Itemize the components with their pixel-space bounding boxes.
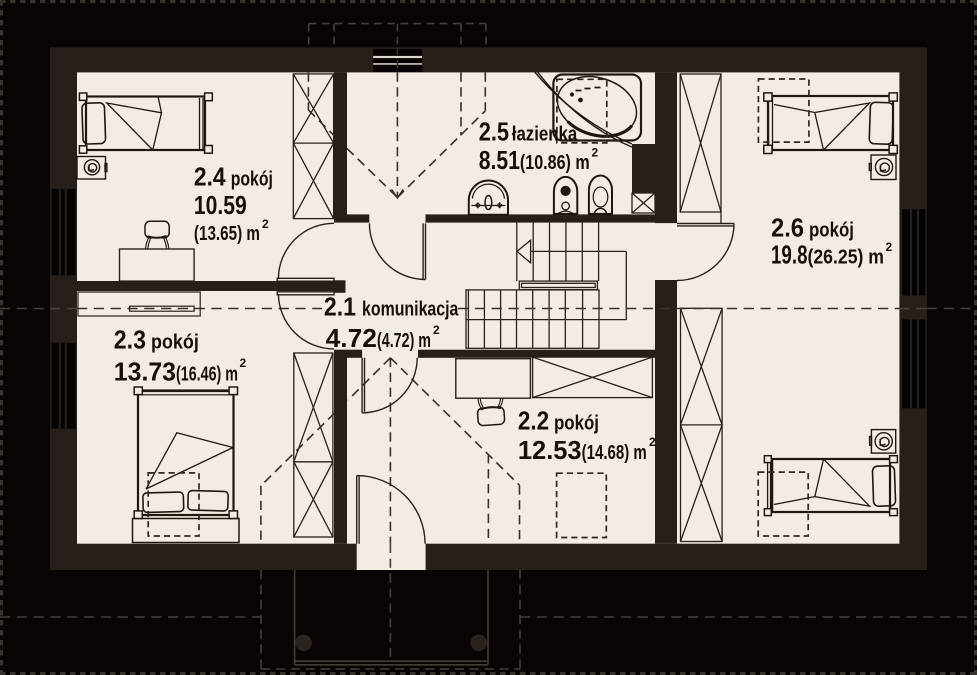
svg-text:(16.46) m: (16.46) m <box>176 362 238 385</box>
svg-text:pokój: pokój <box>231 167 273 190</box>
svg-text:(4.72) m: (4.72) m <box>377 329 431 352</box>
svg-text:2: 2 <box>262 217 269 231</box>
svg-text:2.1: 2.1 <box>324 292 356 322</box>
svg-text:2.4: 2.4 <box>194 161 226 191</box>
svg-text:(10.86) m: (10.86) m <box>520 151 590 174</box>
svg-text:2.3: 2.3 <box>114 325 146 355</box>
svg-text:8.51: 8.51 <box>479 145 520 175</box>
svg-text:2.5: 2.5 <box>479 116 509 146</box>
svg-text:(26.25) m: (26.25) m <box>808 246 885 269</box>
svg-text:łazienka: łazienka <box>512 122 578 145</box>
svg-text:pokój: pokój <box>554 411 599 434</box>
svg-text:2.6: 2.6 <box>771 213 804 243</box>
svg-text:2: 2 <box>240 356 247 370</box>
svg-text:2: 2 <box>433 323 440 337</box>
svg-text:10.59: 10.59 <box>194 190 247 220</box>
svg-text:komunikacja: komunikacja <box>362 298 459 321</box>
svg-text:2: 2 <box>592 146 599 160</box>
svg-text:2: 2 <box>886 240 893 254</box>
svg-text:4.72: 4.72 <box>326 323 377 353</box>
svg-text:pokój: pokój <box>151 331 199 354</box>
svg-text:19.8: 19.8 <box>771 240 808 270</box>
svg-text:pokój: pokój <box>809 219 854 242</box>
svg-text:(13.65) m: (13.65) m <box>194 222 260 245</box>
svg-text:12.53: 12.53 <box>518 435 582 465</box>
svg-text:2: 2 <box>649 435 656 449</box>
svg-text:2.2: 2.2 <box>518 405 549 435</box>
svg-text:13.73: 13.73 <box>114 356 176 386</box>
svg-text:(14.68) m: (14.68) m <box>582 441 647 464</box>
